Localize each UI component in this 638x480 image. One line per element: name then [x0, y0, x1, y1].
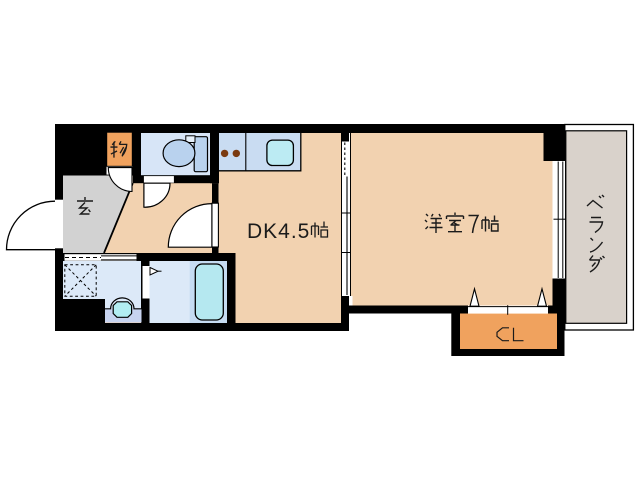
- svg-text:DK4.5: DK4.5: [247, 220, 310, 243]
